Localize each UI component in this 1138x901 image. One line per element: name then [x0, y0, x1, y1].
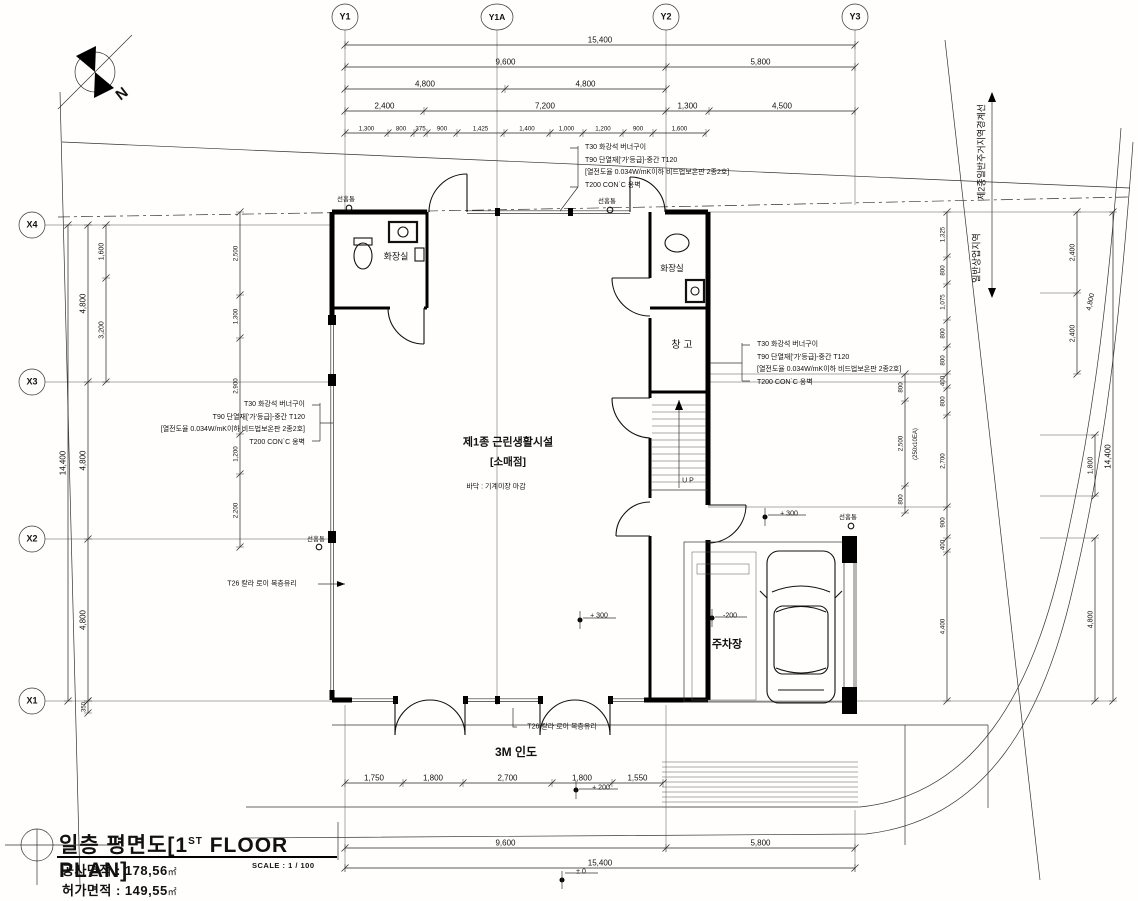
finish-note-line: T90 단열재['가'등급]-중간 T120: [757, 352, 901, 365]
dim-right-total-value: 14,400: [1104, 444, 1113, 469]
dim-bottom-row1-value: 1,750: [364, 774, 385, 783]
finish-note-line: T90 단열재['가'등급]-중간 T120: [161, 412, 305, 425]
scale-note: SCALE : 1 / 100: [252, 861, 315, 870]
construction-area: 공사면적 : 178,56㎡: [62, 860, 177, 879]
dim-left-grid-value: 4,800: [79, 293, 88, 314]
dim-left-inner-value: 2,200: [233, 502, 240, 518]
dim-bottom-row2-value: 5,800: [750, 839, 771, 848]
dim-left-grid-value: 4,800: [79, 609, 88, 630]
car-plan-icon: [760, 551, 842, 703]
dim-bottom-row2-value: 9,600: [495, 839, 516, 848]
dim-top-row2-value: 9,600: [495, 58, 516, 67]
finish-note-line: T30 화강석 버너구이: [585, 142, 729, 155]
dim-top-row4-value: 1,300: [677, 102, 698, 111]
dim-top-row5-value: 375: [415, 126, 426, 133]
dim-right-inner-value: 800: [940, 355, 947, 366]
dim-right-4800-value: 4,800: [1088, 611, 1095, 629]
permit-area-value: 149,55: [125, 883, 168, 898]
finish-note-line: T90 단열재['가'등급]-중간 T120: [585, 155, 729, 168]
dim-right-stair-value: 2,500: [898, 435, 905, 451]
dim-top-row5-value: 1,200: [595, 126, 611, 133]
dim-bottom-row1-value: 1,800: [572, 774, 593, 783]
construction-area-value: 178,56: [125, 863, 168, 878]
stairs: [652, 400, 706, 488]
dim-left-sub-value: 1,600: [99, 243, 106, 261]
finish-note-line: T200 CON`C 옹벽: [585, 180, 729, 193]
finish-note-top: T30 화강석 버너구이 T90 단열재['가'등급]-중간 T120 [열전도…: [585, 142, 729, 192]
dim-right-inner-value: 800: [940, 265, 947, 276]
dim-left-total-value: 14,400: [59, 450, 68, 475]
dim-left-grid-value: 4,800: [79, 450, 88, 471]
dim-right-inner-value: 2,700: [940, 453, 947, 469]
finish-note-line: T30 화강석 버너구이: [757, 339, 901, 352]
dim-right-inner-value: 800: [940, 396, 947, 407]
compass-icon: [58, 35, 132, 109]
dim-right-inner-value: 900: [940, 517, 947, 528]
dim-right-1800-value: 1,800: [1088, 457, 1095, 475]
dim-bottom-row3-value: 15,400: [588, 859, 613, 868]
dim-left-350-value: 350: [82, 701, 88, 712]
finish-note-line: T200 CON`C 옹벽: [161, 437, 305, 450]
dim-top-row5-value: 800: [396, 126, 407, 133]
finish-note-line: [열전도율 0.034W/mK이하 비드법보온판 2종2호]: [757, 364, 901, 377]
dim-top-row4-value: 7,200: [535, 102, 556, 111]
dim-top-row5-value: 900: [633, 126, 644, 133]
dim-bottom-row1-value: 1,800: [423, 774, 444, 783]
dim-top-row5-value: 1,400: [519, 126, 535, 133]
dim-right-inner-value: 1,075: [940, 294, 947, 310]
dim-right-inner-value: 4,400: [940, 618, 947, 634]
permit-area-label: 허가면적 :: [62, 883, 121, 898]
area-unit: ㎡: [168, 867, 178, 877]
dim-top-row5-value: 1,425: [473, 126, 489, 133]
dim-top-row5-value: 1,600: [672, 126, 688, 133]
dim-left-inner-value: 2,900: [233, 378, 240, 394]
title-superscript: ST: [188, 836, 203, 847]
dim-top-row3-value: 4,800: [415, 80, 436, 89]
driveway-hatch: [662, 762, 858, 807]
finish-note-line: [열전도율 0.034W/mK이하 비드법보온판 2종2호]: [161, 424, 305, 437]
dim-right-2400-value: 2,400: [1070, 244, 1077, 262]
dim-top-row4-value: 2,400: [374, 102, 395, 111]
dim-top-row5-value: 900: [437, 126, 448, 133]
dim-right-stair-value: 800: [898, 494, 905, 505]
dim-right-inner-value: 800: [940, 328, 947, 339]
finish-note-line: T30 화강석 버너구이: [161, 399, 305, 412]
title-underline: [57, 856, 337, 858]
dim-top-row3-value: 4,800: [575, 80, 596, 89]
finish-note-line: T200 CON`C 옹벽: [757, 377, 901, 390]
floor-plan-sheet: 15,4009,6005,8004,8004,8002,4007,2001,30…: [0, 0, 1138, 901]
dim-right-inner-value: 1,325: [940, 226, 947, 242]
dim-top-row5-value: 1,000: [559, 126, 575, 133]
dim-left-inner-value: 1,300: [233, 308, 240, 324]
area-unit: ㎡: [168, 887, 178, 897]
dim-top-row5-value: 1,300: [359, 126, 375, 133]
dim-right-inner-value: 400: [940, 375, 947, 386]
dim-top-row1-value: 15,400: [588, 36, 613, 45]
permit-area: 허가면적 : 149,55㎡: [62, 880, 177, 899]
dim-bottom-row1-value: 2,700: [497, 774, 518, 783]
dim-top-row4-value: 4,500: [772, 102, 793, 111]
construction-area-label: 공사면적 :: [62, 863, 121, 878]
finish-note-right: T30 화강석 버너구이 T90 단열재['가'등급]-중간 T120 [열전도…: [757, 339, 901, 389]
dim-top-row2-value: 5,800: [750, 58, 771, 67]
dim-bottom-row1-value: 1,550: [627, 774, 648, 783]
dim-left-sub-value: 3,200: [99, 321, 106, 339]
dim-right-inner-value: 400: [940, 539, 947, 550]
dim-right-2400-value: 2,400: [1070, 325, 1077, 343]
building-walls: [328, 174, 746, 735]
finish-note-left: T30 화강석 버너구이 T90 단열재['가'등급]-중간 T120 [열전도…: [161, 399, 305, 449]
finish-note-line: [열전도율 0.034W/mK이하 비드법보온판 2종2호]: [585, 167, 729, 180]
plan-drawing: 15,4009,6005,8004,8004,8002,4007,2001,30…: [0, 0, 1138, 901]
dim-left-inner-value: 2,500: [233, 245, 240, 261]
